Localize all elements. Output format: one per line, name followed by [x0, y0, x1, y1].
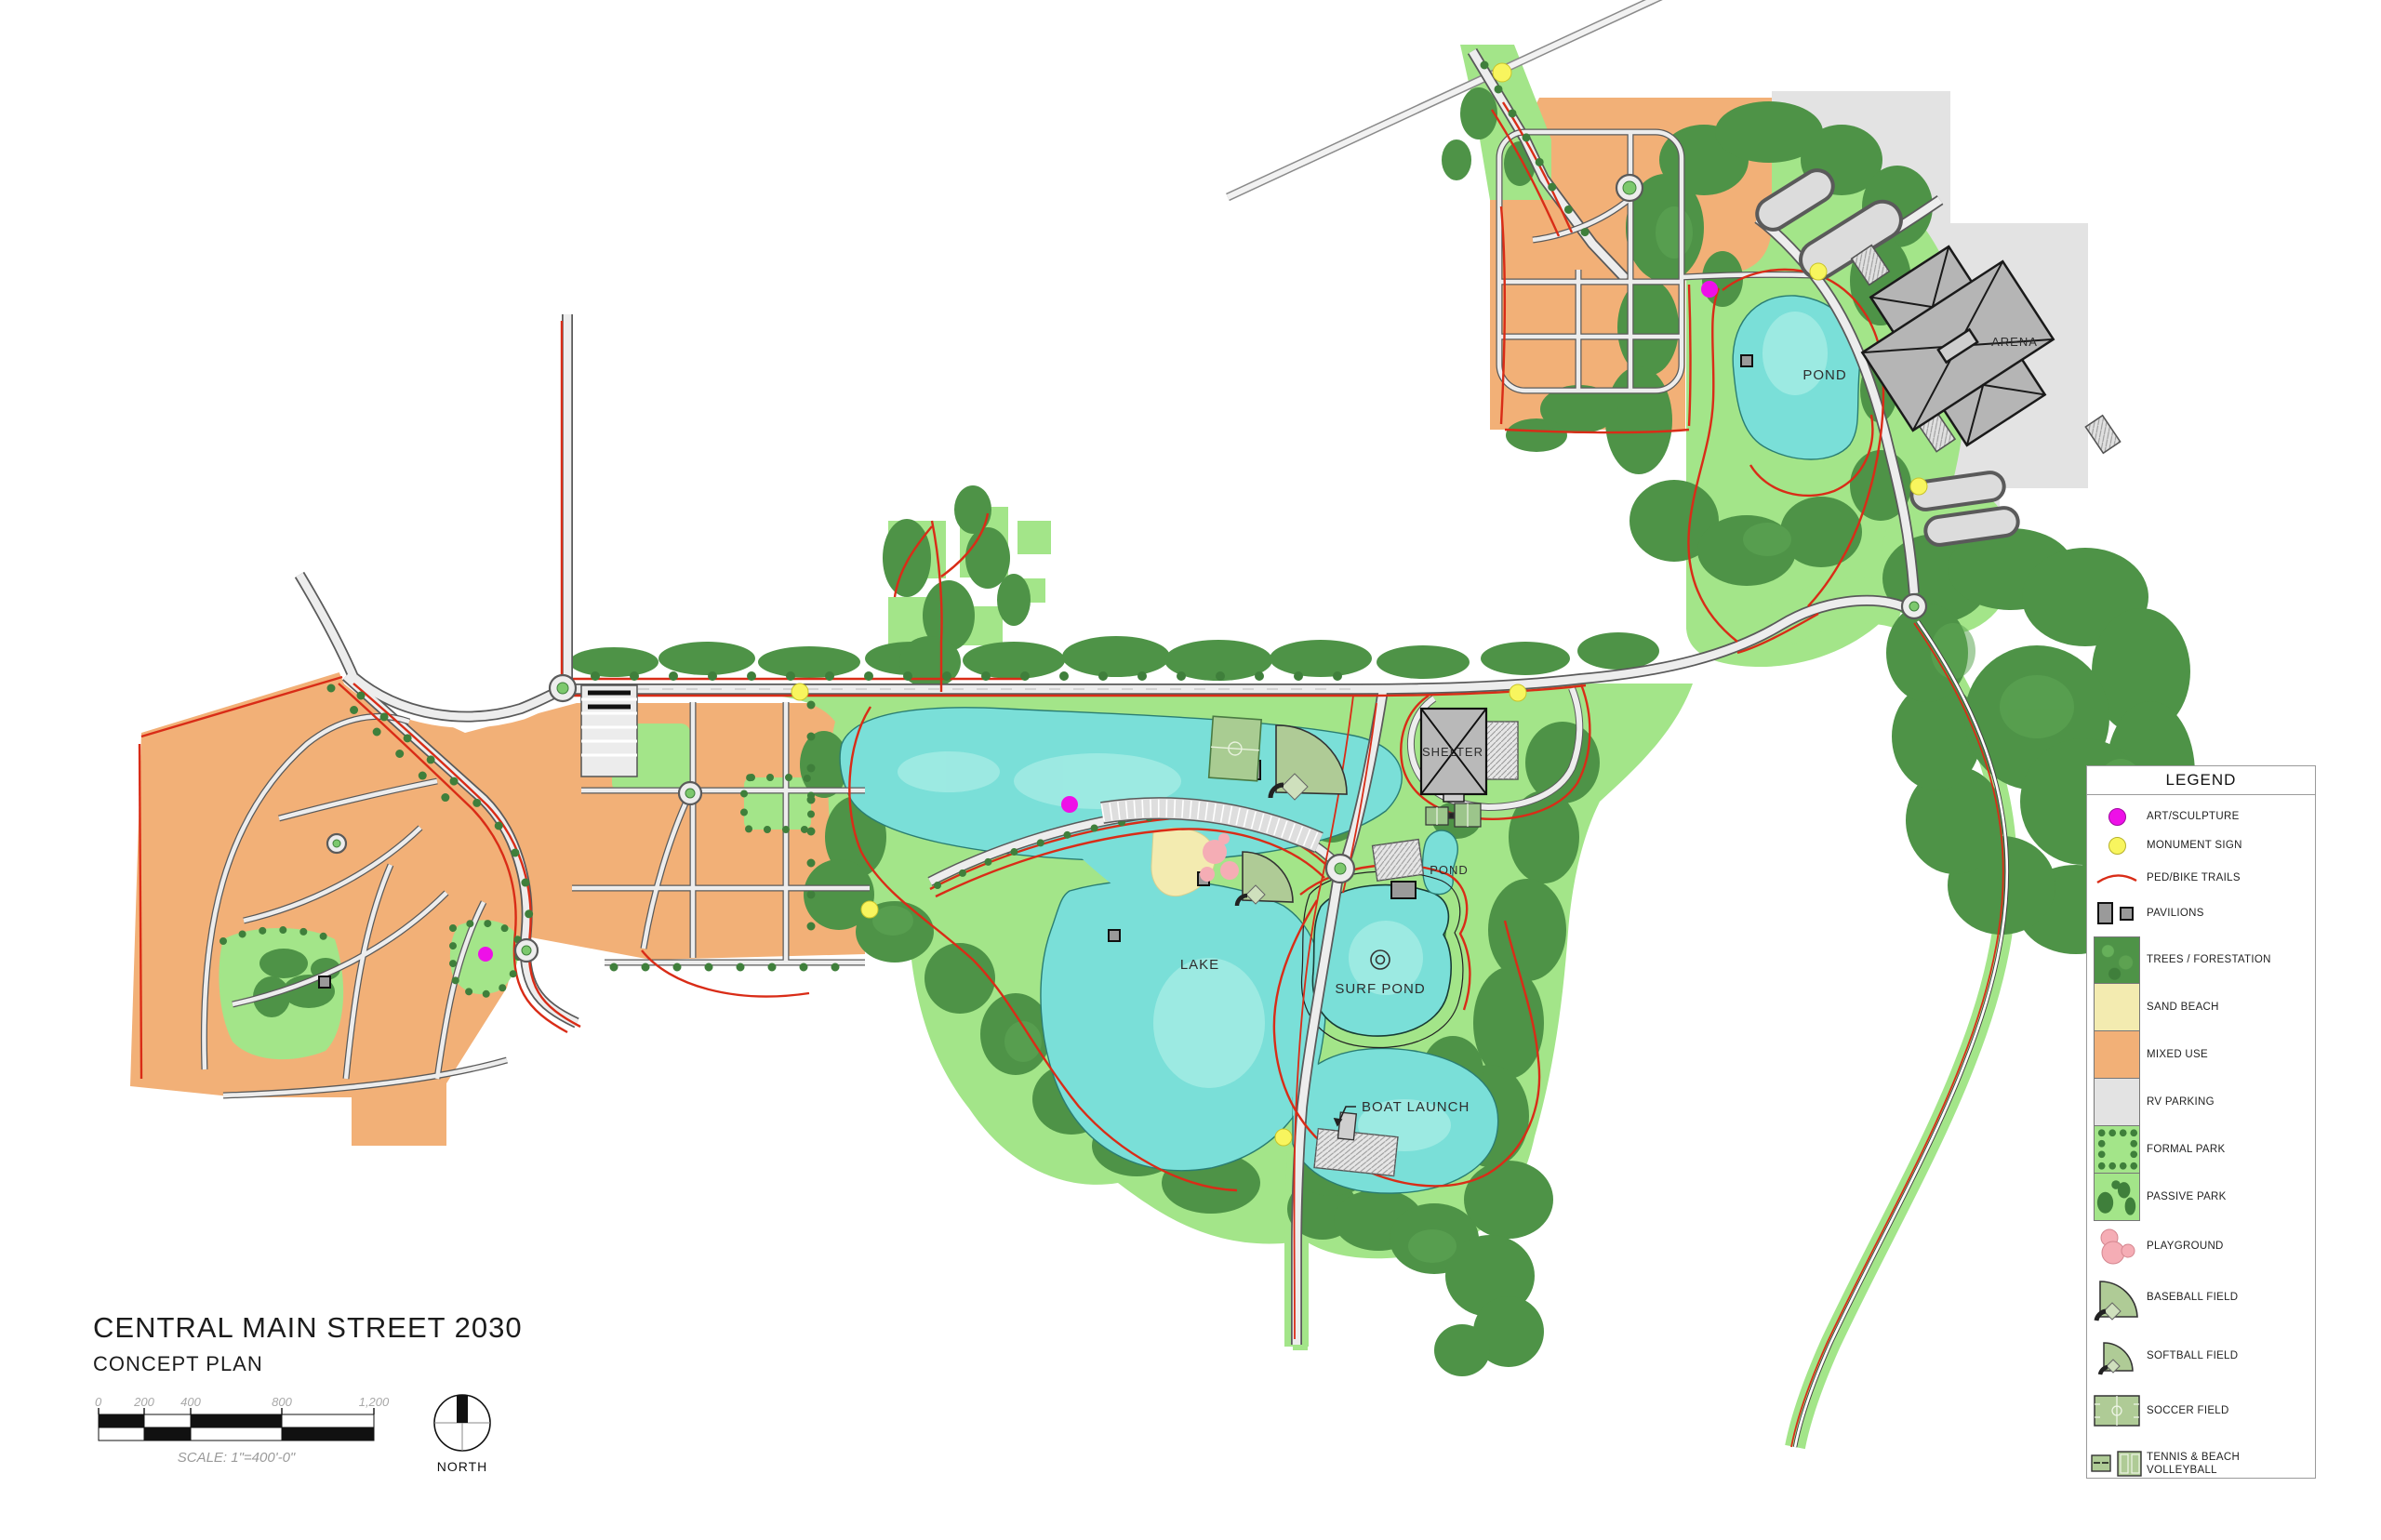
scale-bar: 0 200 400 800 1,200 SCALE: 1"=400'-0" — [95, 1395, 390, 1466]
arena-label: ARENA — [1991, 335, 2038, 349]
pond-north-label: POND — [1802, 367, 1846, 383]
soccer-field-map — [1209, 716, 1261, 780]
legend-item-mixed-use: MIXED USE — [2087, 1031, 2315, 1079]
legend-item-sand-beach: SAND BEACH — [2087, 984, 2315, 1031]
concept-plan-canvas: POND ARENA SHELTER POND LAKE SURF POND B… — [0, 0, 2381, 1540]
baseball-field-icon — [2087, 1272, 2147, 1322]
legend-item-label: SOCCER FIELD — [2147, 1404, 2229, 1417]
page-title: CENTRAL MAIN STREET 2030 — [93, 1311, 523, 1344]
legend-item-ped-bike-trails: PED/BIKE TRAILS — [2087, 860, 2315, 896]
page-subtitle: CONCEPT PLAN — [93, 1352, 263, 1375]
north-arrow-icon: NORTH — [434, 1395, 490, 1474]
playground-icon — [2087, 1228, 2147, 1265]
legend-item-formal-park: FORMAL PARK — [2087, 1126, 2315, 1174]
formal-park-central — [744, 777, 811, 830]
scale-tick-200: 200 — [133, 1395, 154, 1409]
scale-tick-800: 800 — [272, 1395, 292, 1409]
scale-tick-400: 400 — [180, 1395, 201, 1409]
scale-tick-0: 0 — [95, 1395, 102, 1409]
boat-launch-label: BOAT LAUNCH — [1362, 1099, 1470, 1115]
monument-sign-icon — [2108, 837, 2126, 855]
north-label: NORTH — [437, 1459, 488, 1474]
legend-title: LEGEND — [2087, 766, 2315, 795]
legend-item-label: ART/SCULPTURE — [2147, 810, 2240, 823]
softball-field-icon — [2087, 1335, 2147, 1376]
legend: LEGEND ART/SCULPTURE MONUMENT SIGN PED/B… — [2086, 765, 2316, 1479]
legend-item-label: PAVILIONS — [2147, 907, 2204, 920]
legend-item-art-sculpture: ART/SCULPTURE — [2087, 803, 2315, 831]
formal-park-swatch — [2094, 1126, 2140, 1174]
legend-item-soccer-field: SOCCER FIELD — [2087, 1385, 2315, 1437]
pond-small-label: POND — [1430, 863, 1469, 877]
art-sculpture-icon — [2108, 808, 2126, 826]
legend-item-label: TREES / FORESTATION — [2147, 953, 2271, 966]
pavilions-icon — [2087, 901, 2147, 925]
legend-item-label: SOFTBALL FIELD — [2147, 1349, 2238, 1362]
tennis-volleyball-icon — [2087, 1450, 2147, 1478]
title-block: CENTRAL MAIN STREET 2030 CONCEPT PLAN 0 … — [93, 1311, 523, 1474]
legend-item-label: RV PARKING — [2147, 1095, 2215, 1109]
rv-parking-swatch — [2094, 1079, 2140, 1126]
legend-item-label: BASEBALL FIELD — [2147, 1291, 2238, 1304]
scale-caption: SCALE: 1"=400'-0" — [178, 1450, 296, 1466]
shelter-parking — [1486, 722, 1518, 779]
shelter-label: SHELTER — [1422, 745, 1483, 759]
legend-item-label: MONUMENT SIGN — [2147, 839, 2242, 852]
surf-pond-label: SURF POND — [1335, 981, 1425, 997]
legend-item-label: TENNIS & BEACH VOLLEYBALL — [2147, 1451, 2286, 1478]
legend-item-passive-park: PASSIVE PARK — [2087, 1174, 2315, 1221]
passive-park-swatch — [2094, 1174, 2140, 1221]
legend-item-rv-parking: RV PARKING — [2087, 1079, 2315, 1126]
soccer-field-icon — [2087, 1395, 2147, 1427]
legend-item-playground: PLAYGROUND — [2087, 1225, 2315, 1268]
legend-item-monument-sign: MONUMENT SIGN — [2087, 831, 2315, 860]
legend-item-label: PLAYGROUND — [2147, 1240, 2224, 1253]
legend-item-label: SAND BEACH — [2147, 1001, 2219, 1014]
pond-parking — [1373, 840, 1424, 882]
lake-label: LAKE — [1180, 957, 1219, 973]
legend-item-baseball-field: BASEBALL FIELD — [2087, 1268, 2315, 1327]
legend-item-label: PED/BIKE TRAILS — [2147, 871, 2241, 884]
legend-item-label: FORMAL PARK — [2147, 1143, 2225, 1156]
sand-beach-swatch — [2094, 984, 2140, 1031]
scale-tick-1200: 1,200 — [359, 1395, 390, 1409]
legend-item-pavilions: PAVILIONS — [2087, 896, 2315, 931]
mixed-use-swatch — [2094, 1031, 2140, 1079]
legend-item-softball-field: SOFTBALL FIELD — [2087, 1327, 2315, 1385]
west-parking-lot — [581, 685, 637, 777]
legend-item-label: PASSIVE PARK — [2147, 1190, 2227, 1203]
legend-item-trees-forestation: TREES / FORESTATION — [2087, 936, 2315, 984]
legend-item-tennis-volleyball: TENNIS & BEACH VOLLEYBALL — [2087, 1437, 2315, 1491]
trees-swatch — [2094, 936, 2140, 984]
legend-item-label: MIXED USE — [2147, 1048, 2208, 1061]
ped-bike-trail-icon — [2087, 870, 2147, 886]
mixed-use-west — [130, 671, 865, 1146]
concept-plan-map: POND ARENA SHELTER POND LAKE SURF POND B… — [0, 0, 2381, 1540]
